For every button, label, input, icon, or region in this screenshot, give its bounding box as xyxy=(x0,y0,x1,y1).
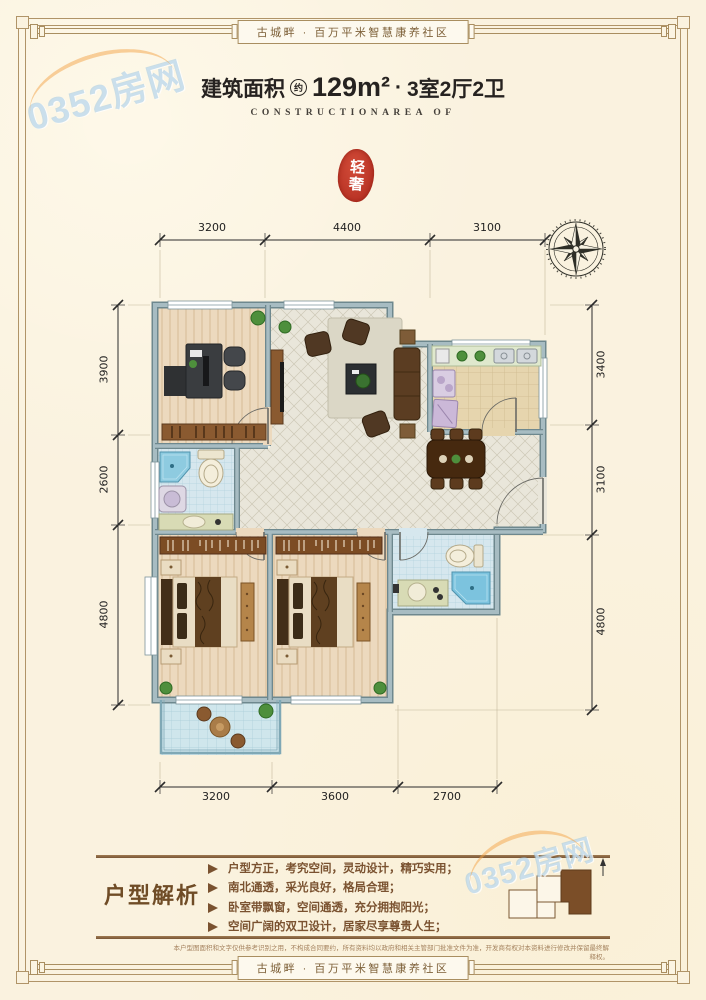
title-area: 129m² xyxy=(312,72,390,103)
dim-bottom-1: 3200 xyxy=(191,790,241,803)
dining-furniture xyxy=(427,429,485,489)
frame-corner-ornament xyxy=(16,971,29,984)
banner-end-cap xyxy=(30,24,38,39)
floor-plan xyxy=(90,210,660,800)
frame-corner-ornament xyxy=(16,16,29,29)
dim-bottom-2: 3600 xyxy=(310,790,360,803)
bottom-banner: 古城畔 · 百万平米智慧康养社区 xyxy=(30,956,676,980)
dim-top-2: 4400 xyxy=(322,221,372,234)
banner-end-cap xyxy=(661,26,667,37)
analysis-heading: 户型解析 xyxy=(104,878,200,910)
top-banner: 古城畔 · 百万平米智慧康养社区 xyxy=(30,20,676,44)
analysis-bullet: 空间广阔的双卫设计，居家尽享尊贵人生； xyxy=(208,920,508,934)
analysis-bullet: 户型方正，考究空间，灵动设计，精巧实用； xyxy=(208,862,508,876)
dim-left-1: 3900 xyxy=(98,345,111,395)
arrow-bullet-icon xyxy=(208,903,218,913)
approx-circle-badge: 约 xyxy=(290,79,307,96)
title-block: 建筑面积 约 129m² · 3室2厅2卫 CONSTRUCTIONAREA O… xyxy=(0,72,706,118)
seal-text: 轻奢 xyxy=(344,158,367,193)
banner-slogan: 古城畔 · 百万平米智慧康养社区 xyxy=(238,20,469,44)
dim-left-2: 2600 xyxy=(98,455,111,505)
dim-right-2: 3100 xyxy=(595,455,608,505)
banner-slogan: 古城畔 · 百万平米智慧康养社区 xyxy=(238,956,469,980)
red-seal-stamp: 轻奢 xyxy=(336,148,376,203)
bullet-text: 南北通透，采光良好，格局合理； xyxy=(228,881,401,895)
banner-end-cap xyxy=(39,962,45,973)
banner-end-cap xyxy=(668,960,676,975)
compass-rose-icon xyxy=(547,220,605,278)
section-divider-bottom xyxy=(96,936,610,939)
dim-bottom-3: 2700 xyxy=(422,790,472,803)
title-row: 建筑面积 约 129m² · 3室2厅2卫 xyxy=(0,72,706,103)
dim-right-1: 3400 xyxy=(595,340,608,390)
dim-top-1: 3200 xyxy=(187,221,237,234)
title-layout: 3室2厅2卫 xyxy=(407,73,505,103)
bay-window xyxy=(145,577,157,655)
arrow-bullet-icon xyxy=(208,922,218,932)
analysis-bullet: 卧室带飘窗，空间通透，充分拥抱阳光； xyxy=(208,901,508,915)
bullet-text: 卧室带飘窗，空间通透，充分拥抱阳光； xyxy=(228,901,435,915)
arrow-bullet-icon xyxy=(208,883,218,893)
frame-corner-ornament xyxy=(677,971,690,984)
north-arrow-icon xyxy=(600,858,606,876)
banner-end-cap xyxy=(668,24,676,39)
title-prefix: 建筑面积 xyxy=(201,73,285,103)
dim-left-3: 4800 xyxy=(98,590,111,640)
highlighted-unit xyxy=(561,870,591,914)
title-subtitle: CONSTRUCTIONAREA OF xyxy=(0,108,706,118)
analysis-bullet-list: 户型方正，考究空间，灵动设计，精巧实用； 南北通透，采光良好，格局合理； 卧室带… xyxy=(208,862,508,940)
analysis-bullet: 南北通透，采光良好，格局合理； xyxy=(208,881,508,895)
frame-corner-ornament xyxy=(677,16,690,29)
banner-end-cap xyxy=(661,962,667,973)
dim-top-3: 3100 xyxy=(462,221,512,234)
banner-end-cap xyxy=(30,960,38,975)
floorplan-poster: 0352房网 古城畔 · 百万平米智慧康养社区 建筑面积 约 129m² · 3… xyxy=(0,0,706,1000)
bullet-text: 户型方正，考究空间，灵动设计，精巧实用； xyxy=(228,862,458,876)
banner-end-cap xyxy=(39,26,45,37)
bullet-text: 空间广阔的双卫设计，居家尽享尊贵人生； xyxy=(228,920,447,934)
dim-right-3: 4800 xyxy=(595,597,608,647)
building-footprint-diagram xyxy=(503,856,613,934)
title-separator: · xyxy=(395,76,402,100)
arrow-bullet-icon xyxy=(208,864,218,874)
